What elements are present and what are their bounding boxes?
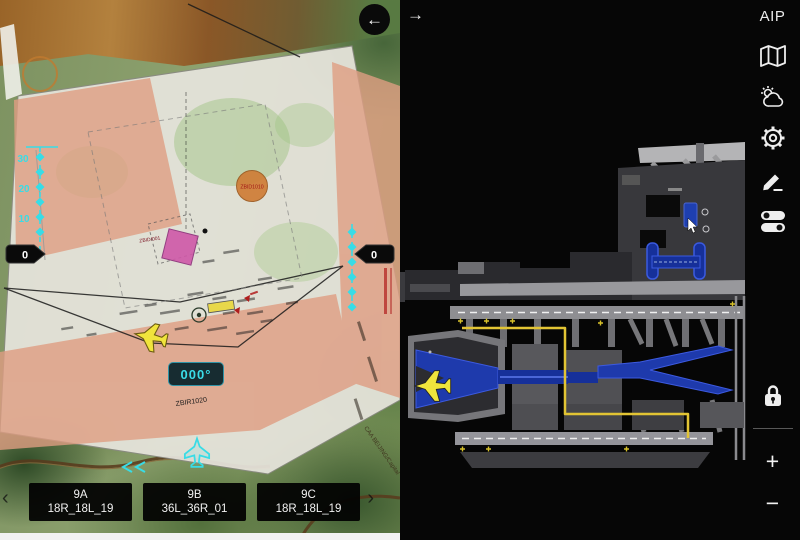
zoom-out-button[interactable]: − xyxy=(766,492,779,515)
procedure-button-9b[interactable]: 9B 36L_36R_01 xyxy=(143,483,246,521)
gear-icon xyxy=(759,124,787,152)
sidebar: AIP xyxy=(745,0,800,540)
procedure-button-9a[interactable]: 9A 18R_18L_19 xyxy=(29,483,132,521)
terminal-complex xyxy=(618,142,745,300)
edit-button[interactable] xyxy=(759,166,787,194)
procedure-runways: 18R_18L_19 xyxy=(48,502,114,516)
zoom-in-button[interactable]: + xyxy=(766,450,779,473)
toggles-button[interactable] xyxy=(759,207,787,235)
scale-label-20: 20 xyxy=(18,184,30,195)
heading-readout: 000° xyxy=(168,362,224,386)
scale-label-10: 10 xyxy=(18,214,30,225)
restricted-circle xyxy=(23,57,57,91)
waypoint-circle: ZBID1010 xyxy=(237,171,268,202)
pencil-icon xyxy=(760,167,786,193)
procedure-button-9c[interactable]: 9C 18R_18L_19 xyxy=(257,483,360,521)
procedure-runways: 18R_18L_19 xyxy=(276,502,342,516)
chart-map-panel[interactable]: ZBID1010 ZBID/001 ZBIR1020 CAA BEIJING/C… xyxy=(0,0,400,540)
weather-icon xyxy=(759,85,787,109)
weather-button[interactable] xyxy=(759,83,787,111)
airport-diagram-panel[interactable]: → xyxy=(400,0,800,540)
procedure-code: 9A xyxy=(73,488,87,502)
svg-text:0: 0 xyxy=(371,250,377,262)
procedure-code: 9B xyxy=(187,488,201,502)
app-screen: ZBID1010 ZBID/001 ZBIR1020 CAA BEIJING/C… xyxy=(0,0,800,540)
toggles-icon xyxy=(759,208,787,234)
west-terminal xyxy=(408,330,505,422)
scale-label-30: 30 xyxy=(17,154,29,165)
map-layers-button[interactable] xyxy=(759,42,787,70)
prev-chevron[interactable]: ‹ xyxy=(2,487,9,510)
waypoint-circle-label: ZBID1010 xyxy=(240,185,263,191)
lock-button[interactable] xyxy=(759,382,787,410)
runway-north xyxy=(450,306,745,319)
back-button[interactable]: ← xyxy=(359,4,390,35)
svg-text:0: 0 xyxy=(22,250,28,262)
runway-south xyxy=(455,432,713,468)
bottom-strip xyxy=(0,533,400,540)
procedure-selector-bar: ‹ 9A 18R_18L_19 9B 36L_36R_01 9C 18R_18L… xyxy=(0,483,400,521)
map-icon xyxy=(759,44,787,68)
lock-icon xyxy=(760,382,786,410)
back-arrow-icon: ← xyxy=(366,10,383,30)
aip-button[interactable]: AIP xyxy=(760,8,786,25)
sidebar-divider xyxy=(753,428,793,429)
chart-overlay: ZBID1010 ZBID/001 ZBIR1020 CAA BEIJING/C… xyxy=(0,0,400,540)
heading-value: 000° xyxy=(181,367,212,382)
chart-margin-text: CAA BEIJING/Capital xyxy=(362,426,400,476)
airport-diagram xyxy=(400,0,800,540)
procedure-runways: 36L_36R_01 xyxy=(162,502,228,516)
procedure-code: 9C xyxy=(301,488,316,502)
next-chevron[interactable]: › xyxy=(367,487,374,510)
midfield-blocks xyxy=(498,344,744,430)
settings-button[interactable] xyxy=(759,124,787,152)
